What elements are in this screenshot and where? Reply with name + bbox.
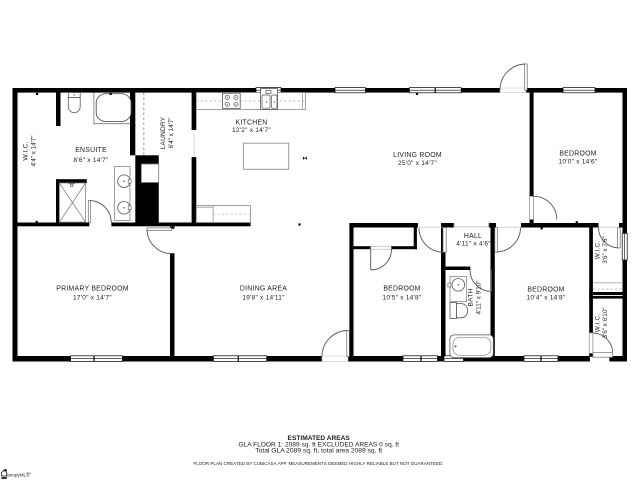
svg-text:ENSUITE: ENSUITE xyxy=(75,147,107,154)
svg-text:TM: TM xyxy=(27,472,32,476)
svg-text:3'6" x 7'6": 3'6" x 7'6" xyxy=(602,236,609,264)
svg-text:BATH: BATH xyxy=(468,289,475,307)
svg-text:19'8" x 14'11": 19'8" x 14'11" xyxy=(242,295,285,302)
svg-text:BEDROOM: BEDROOM xyxy=(559,151,596,158)
svg-text:4'4" x 14'7": 4'4" x 14'7" xyxy=(31,135,38,166)
svg-text:W.I.C.: W.I.C. xyxy=(23,141,30,160)
svg-text:6'4" x 14'7": 6'4" x 14'7" xyxy=(168,117,175,148)
svg-text:3'6" x 6'10": 3'6" x 6'10" xyxy=(602,307,609,338)
svg-text:BEDROOM: BEDROOM xyxy=(527,287,564,294)
svg-text:4'11" x 9'10": 4'11" x 9'10" xyxy=(476,280,483,314)
svg-text:BEDROOM: BEDROOM xyxy=(383,286,420,293)
svg-text:12'2" x 14'7": 12'2" x 14'7" xyxy=(232,127,271,134)
svg-text:4'11" x 4'6": 4'11" x 4'6" xyxy=(456,240,491,247)
svg-text:8'6" x 14'7": 8'6" x 14'7" xyxy=(73,157,108,164)
svg-text:KITCHEN: KITCHEN xyxy=(236,120,268,127)
svg-text:10'4" x 14'8": 10'4" x 14'8" xyxy=(527,295,566,302)
svg-text:W.I.C.: W.I.C. xyxy=(595,314,602,333)
svg-text:PRIMARY BEDROOM: PRIMARY BEDROOM xyxy=(56,286,128,293)
svg-text:W.I.C.: W.I.C. xyxy=(595,241,602,260)
svg-text:FLOOR PLAN CREATED BY CUBICASA: FLOOR PLAN CREATED BY CUBICASA APP. MEAS… xyxy=(193,461,443,466)
svg-text:25'0" x 14'7": 25'0" x 14'7" xyxy=(398,160,437,167)
svg-text:LAUNDRY: LAUNDRY xyxy=(160,116,167,149)
svg-text:Total GLA 2089 sq. ft, total a: Total GLA 2089 sq. ft, total area 2089 s… xyxy=(255,448,382,455)
svg-text:17'0" x 14'7": 17'0" x 14'7" xyxy=(73,295,112,302)
svg-text:HALL: HALL xyxy=(464,233,482,240)
svg-text:LIVING ROOM: LIVING ROOM xyxy=(393,152,442,159)
svg-text:10'5" x 14'8": 10'5" x 14'8" xyxy=(383,295,422,302)
svg-text:DINING AREA: DINING AREA xyxy=(240,286,287,293)
svg-text:10'0" x 14'6": 10'0" x 14'6" xyxy=(559,158,598,165)
